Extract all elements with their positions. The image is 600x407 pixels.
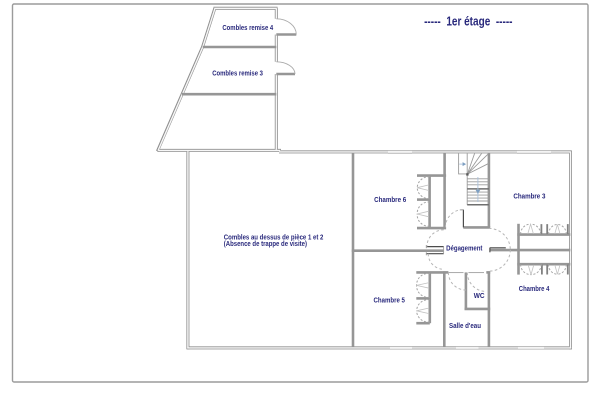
svg-text:Chambre 5: Chambre 5 bbox=[374, 298, 406, 305]
svg-text:Combles remise 3: Combles remise 3 bbox=[212, 70, 263, 77]
svg-text:Chambre 6: Chambre 6 bbox=[374, 197, 406, 204]
svg-text:Combles remise 4: Combles remise 4 bbox=[222, 25, 273, 32]
svg-text:----- 1er étage -----: ----- 1er étage ----- bbox=[424, 13, 512, 28]
svg-text:Chambre 4: Chambre 4 bbox=[519, 286, 550, 293]
svg-text:Chambre 3: Chambre 3 bbox=[513, 194, 545, 201]
svg-text:(Absence de trappe de visite): (Absence de trappe de visite) bbox=[224, 241, 307, 248]
svg-text:WC: WC bbox=[474, 293, 485, 300]
svg-text:Salle d'eau: Salle d'eau bbox=[449, 323, 481, 330]
svg-text:Dégagement: Dégagement bbox=[446, 246, 483, 253]
